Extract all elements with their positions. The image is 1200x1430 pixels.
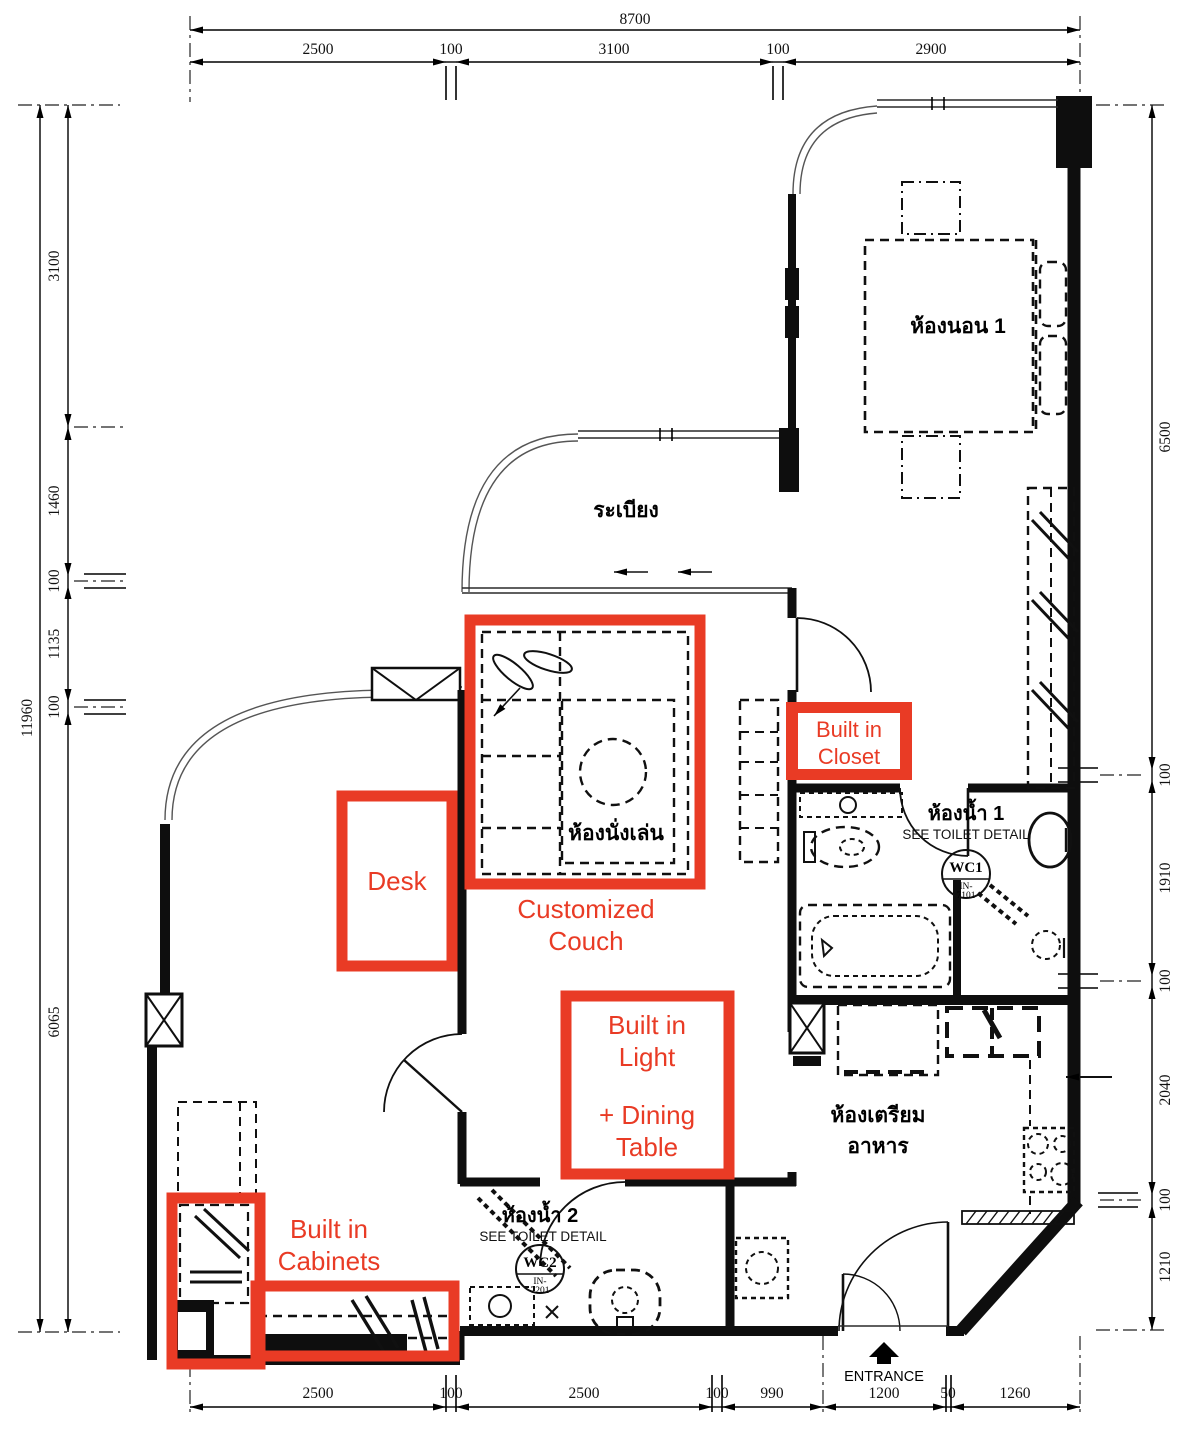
dim-top-seg-1: 2500	[303, 41, 334, 58]
toilet-icon-bath1	[811, 827, 879, 867]
column-x-icon-kitchen	[790, 1003, 824, 1066]
built-in-cabinet-run	[258, 1296, 452, 1356]
furniture	[168, 182, 1078, 1360]
dim-bottom-seg-7: 50	[940, 1385, 956, 1402]
dining-note-4: Table	[616, 1132, 678, 1162]
dim-right-seg-6: 100	[1157, 1188, 1174, 1212]
bath1-label-group: ห้องน้ำ 1 SEE TOILET DETAIL WC1 IN- 7101	[902, 798, 1030, 901]
floor-plan-page: 8700 2500 100 3100 100 2900 11960 3100 1…	[0, 0, 1200, 1430]
dim-bottom-seg-4: 100	[705, 1385, 729, 1402]
floor-plan-drawing: 8700 2500 100 3100 100 2900 11960 3100 1…	[0, 0, 1200, 1430]
dining-note-1: Built in	[608, 1010, 686, 1040]
counter-icon	[838, 1005, 938, 1075]
side-table-icon	[580, 739, 646, 805]
wc1-tag: WC1	[949, 860, 982, 876]
bath2-label-group: ห้องน้ำ 2 SEE TOILET DETAIL WC2 IN- 7201	[479, 1200, 607, 1296]
plant-leaf-icon	[489, 650, 538, 694]
washer-icon	[736, 1238, 788, 1298]
dim-top-seg-3: 3100	[599, 41, 630, 58]
desk-note: Desk	[367, 866, 427, 896]
wc2-tag: WC2	[523, 1255, 556, 1271]
dim-left-seg-5: 100	[46, 695, 63, 719]
closet-note-1: Built in	[816, 717, 882, 742]
dim-right-seg-7: 1210	[1157, 1251, 1174, 1282]
entrance-door-arcs	[838, 1222, 948, 1331]
shelf-unit-icon	[740, 700, 778, 862]
sliding-door	[462, 572, 792, 593]
dim-bottom-seg-1: 2500	[303, 1385, 334, 1402]
dim-right-seg-1: 6500	[1157, 421, 1174, 452]
dining-note-2: Light	[619, 1042, 676, 1072]
wc2-ref-2: 7201	[531, 1286, 550, 1296]
wall-chamfer	[961, 1201, 1078, 1331]
entrance-label: ENTRANCE	[844, 1369, 924, 1385]
nightstand-bottom	[902, 436, 960, 498]
nightstand-top	[902, 182, 960, 234]
shower-icon-bath1	[978, 885, 1064, 959]
stove-icon	[1024, 1128, 1074, 1192]
cabinets-note-1: Built in	[290, 1214, 368, 1244]
dim-bottom-seg-6: 1200	[869, 1385, 900, 1402]
wc1-ref-2: 7101	[957, 891, 976, 901]
dim-right-seg-3: 1910	[1157, 862, 1174, 893]
dining-note-3: + Dining	[599, 1100, 695, 1130]
fridge-icon	[947, 1008, 1039, 1056]
bath1-note: SEE TOILET DETAIL	[902, 827, 1030, 842]
room-label-kitchen-2: อาหาร	[847, 1135, 909, 1158]
dim-right-seg-5: 2040	[1157, 1074, 1174, 1105]
dimension-top: 8700 2500 100 3100 100 2900	[190, 11, 1080, 102]
sink-icon	[840, 797, 856, 813]
column-x-icon	[146, 994, 182, 1046]
dim-left-seg-6: 6065	[46, 1006, 63, 1037]
cabinets-note-2: Cabinets	[278, 1246, 381, 1276]
hallway-door-arc	[797, 618, 871, 692]
room-label-bedroom1: ห้องนอน 1	[910, 314, 1006, 338]
dim-left-seg-2: 1460	[46, 485, 63, 516]
closet-highlight-box: Built in Closet	[786, 702, 912, 780]
entrance-arrow-icon	[869, 1342, 899, 1364]
window-vent-icon-left	[372, 668, 460, 700]
wall-corner-block	[1056, 96, 1092, 168]
room-label-bath1: ห้องน้ำ 1	[928, 798, 1005, 825]
dim-top-total: 8700	[620, 11, 651, 28]
bath2-note: SEE TOILET DETAIL	[479, 1229, 607, 1244]
dim-bottom-seg-5: 990	[760, 1385, 784, 1402]
dim-right-seg-2: 100	[1157, 763, 1174, 787]
dim-left-seg-1: 3100	[46, 250, 63, 281]
curved-glass-wall-bedroom	[793, 106, 877, 194]
dim-left-total: 11960	[19, 699, 36, 737]
room-label-living: ห้องนั่งเล่น	[568, 817, 664, 845]
dim-left-seg-3: 100	[46, 569, 63, 593]
couch-note-1: Customized	[517, 894, 654, 924]
dim-top-seg-4: 100	[766, 41, 790, 58]
basin-icon-bath1	[1029, 813, 1071, 867]
room-label-bath2: ห้องน้ำ 2	[502, 1200, 579, 1227]
dim-top-seg-5: 2900	[916, 41, 947, 58]
dim-top-seg-2: 100	[439, 41, 463, 58]
dim-bottom-seg-3: 2500	[569, 1385, 600, 1402]
closet-note-2: Closet	[818, 744, 880, 769]
room-label-kitchen-1: ห้องเตรียม	[831, 1103, 926, 1127]
dim-bottom-seg-8: 1260	[1000, 1385, 1031, 1402]
bathtub-icon	[800, 905, 950, 987]
couch-note-2: Couch	[548, 926, 623, 956]
dim-left-seg-4: 1135	[46, 629, 63, 660]
room-label-balcony: ระเบียง	[593, 498, 659, 522]
toilet-icon-bath2	[590, 1270, 660, 1334]
dim-bottom-seg-2: 100	[439, 1385, 463, 1402]
dim-right-seg-4: 100	[1157, 969, 1174, 993]
dimension-left: 11960 3100 1460 100 1135 100 6065	[18, 105, 128, 1332]
